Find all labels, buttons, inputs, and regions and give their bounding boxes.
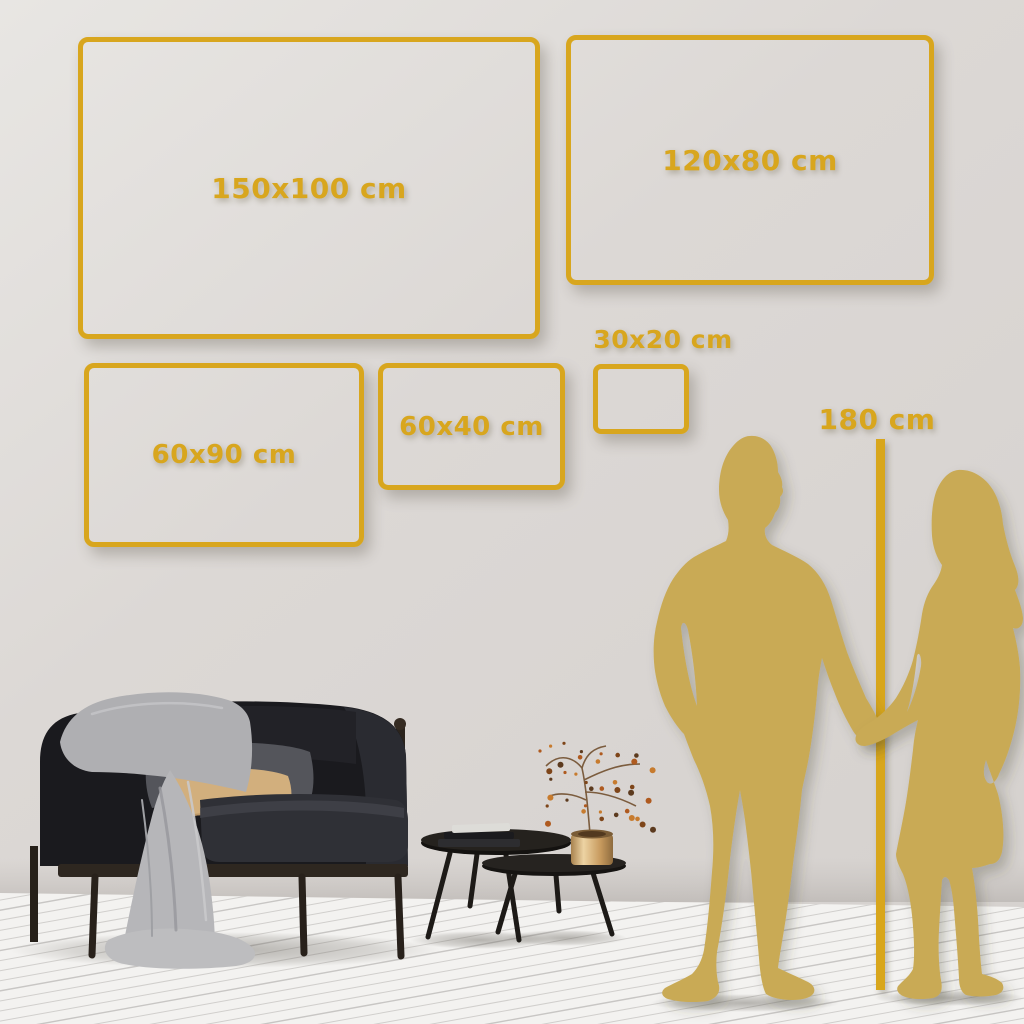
size-box-60x40: 60x40 cm (378, 363, 565, 490)
size-box-150x100: 150x100 cm (78, 37, 540, 339)
size-guide-scene: 150x100 cm 120x80 cm 60x90 cm 60x40 cm 3… (0, 0, 1024, 1024)
size-label-60x90: 60x90 cm (152, 440, 297, 470)
brass-vase (571, 830, 613, 866)
size-label-30x20: 30x20 cm (583, 325, 743, 354)
size-box-60x90: 60x90 cm (84, 363, 364, 547)
height-label: 180 cm (797, 403, 957, 436)
size-label-60x40: 60x40 cm (399, 412, 544, 442)
size-label-150x100: 150x100 cm (211, 172, 406, 205)
size-label-120x80: 120x80 cm (662, 144, 838, 177)
size-box-120x80: 120x80 cm (566, 35, 934, 285)
size-box-30x20 (593, 364, 689, 434)
